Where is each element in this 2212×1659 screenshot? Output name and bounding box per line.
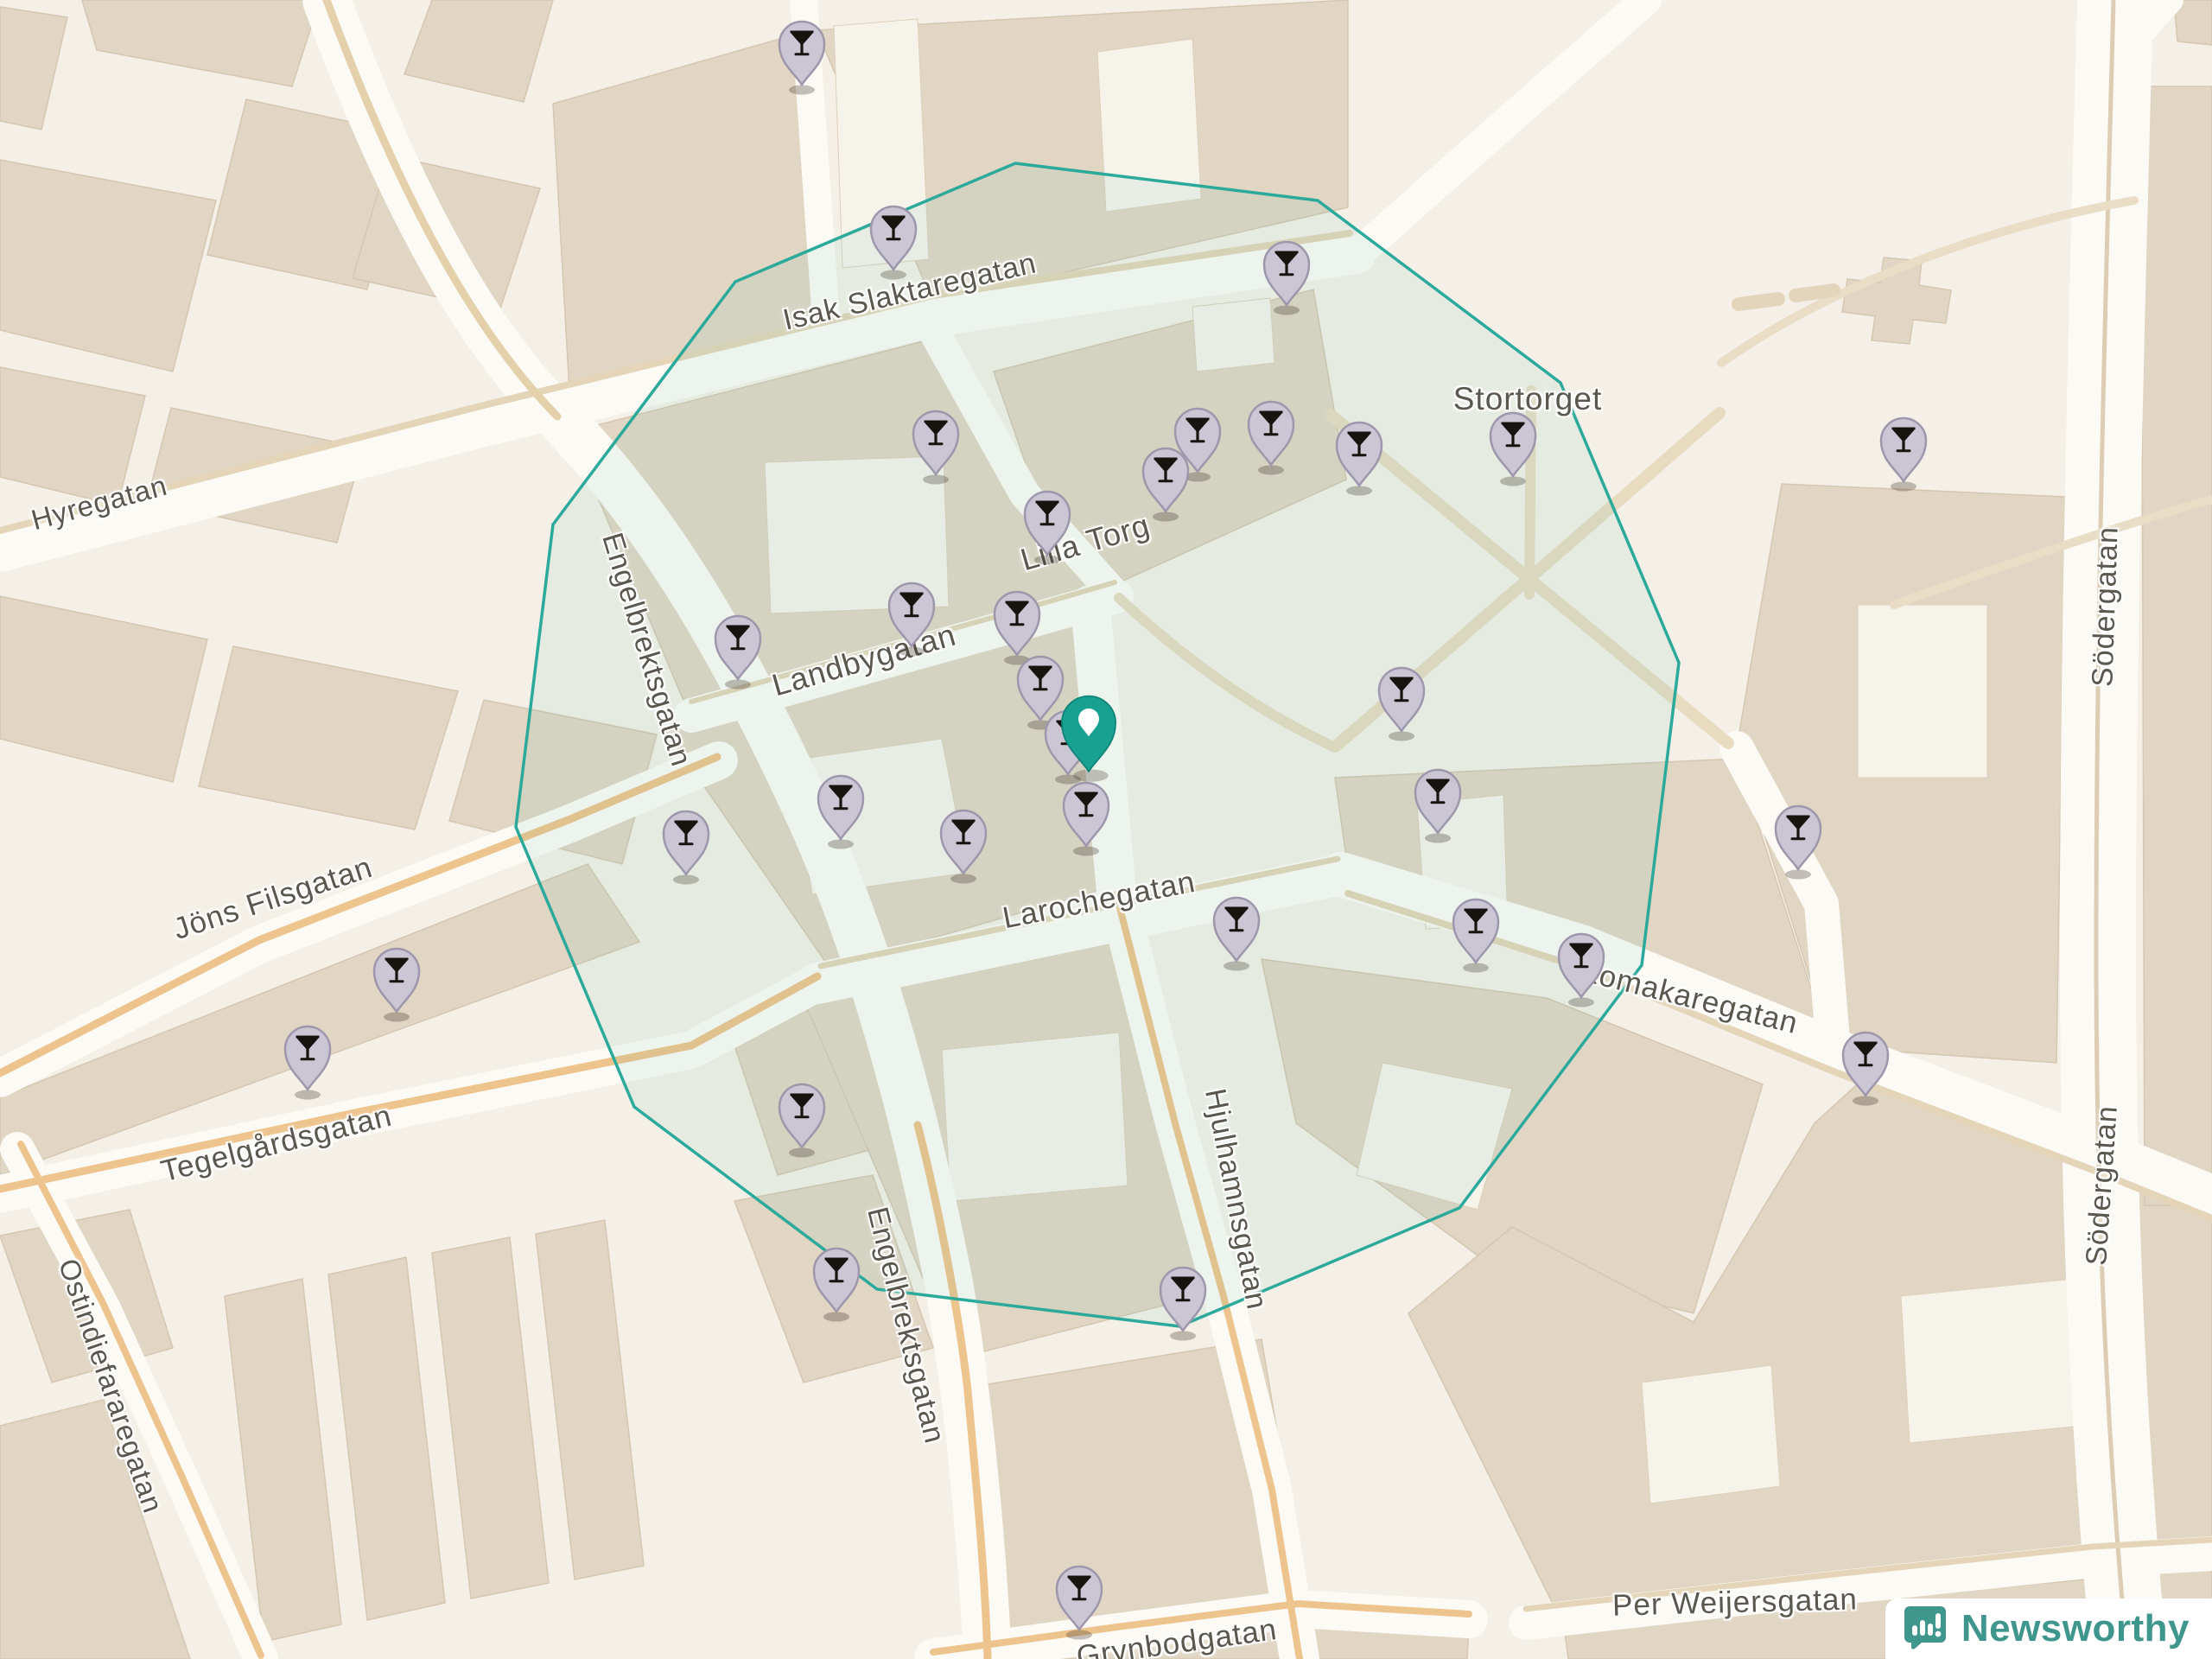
venue-marker-pin[interactable] xyxy=(1376,665,1427,745)
venue-marker-pin[interactable] xyxy=(1555,931,1607,1011)
venue-marker-pin[interactable] xyxy=(1140,446,1192,525)
venue-marker-pin[interactable] xyxy=(282,1024,334,1103)
venue-marker-pin[interactable] xyxy=(1053,1564,1105,1643)
venue-marker-pin[interactable] xyxy=(1245,399,1297,479)
venue-marker-pin[interactable] xyxy=(938,808,989,887)
venue-marker-pin[interactable] xyxy=(1487,410,1539,490)
venue-marker-pin[interactable] xyxy=(371,946,423,1026)
venue-marker-pin[interactable] xyxy=(1333,420,1385,499)
venue-marker-pin[interactable] xyxy=(1211,895,1262,975)
venue-marker-pin[interactable] xyxy=(1021,489,1073,569)
venue-marker-pin[interactable] xyxy=(1772,804,1824,883)
venue-marker-pin[interactable] xyxy=(776,1082,828,1161)
venue-marker-pin[interactable] xyxy=(660,809,712,888)
newsworthy-logo-icon xyxy=(1903,1605,1948,1654)
attribution-text: Newsworthy xyxy=(1961,1607,2190,1650)
venue-marker-pin[interactable] xyxy=(910,409,962,488)
venue-marker-pin[interactable] xyxy=(1060,780,1112,860)
venue-marker-pin[interactable] xyxy=(712,613,764,693)
venue-marker-pin[interactable] xyxy=(1450,897,1502,976)
map-canvas[interactable]: Isak SlaktaregatanStortorgetLilla TorgLa… xyxy=(0,0,2212,1659)
venue-marker-pin[interactable] xyxy=(1412,767,1464,847)
focus-location-pin[interactable] xyxy=(1058,693,1120,788)
venue-marker-pin[interactable] xyxy=(868,204,919,283)
venue-marker-pin[interactable] xyxy=(810,1246,862,1325)
venue-marker-pin[interactable] xyxy=(1878,416,1929,495)
venue-marker-pin[interactable] xyxy=(815,773,867,853)
venue-marker-pin[interactable] xyxy=(886,581,938,660)
attribution-badge[interactable]: Newsworthy xyxy=(1885,1599,2212,1659)
venue-marker-pin[interactable] xyxy=(1157,1265,1209,1344)
venue-marker-pin[interactable] xyxy=(1261,239,1313,319)
venue-marker-pin[interactable] xyxy=(1840,1030,1891,1109)
venue-marker-pin[interactable] xyxy=(776,19,828,99)
